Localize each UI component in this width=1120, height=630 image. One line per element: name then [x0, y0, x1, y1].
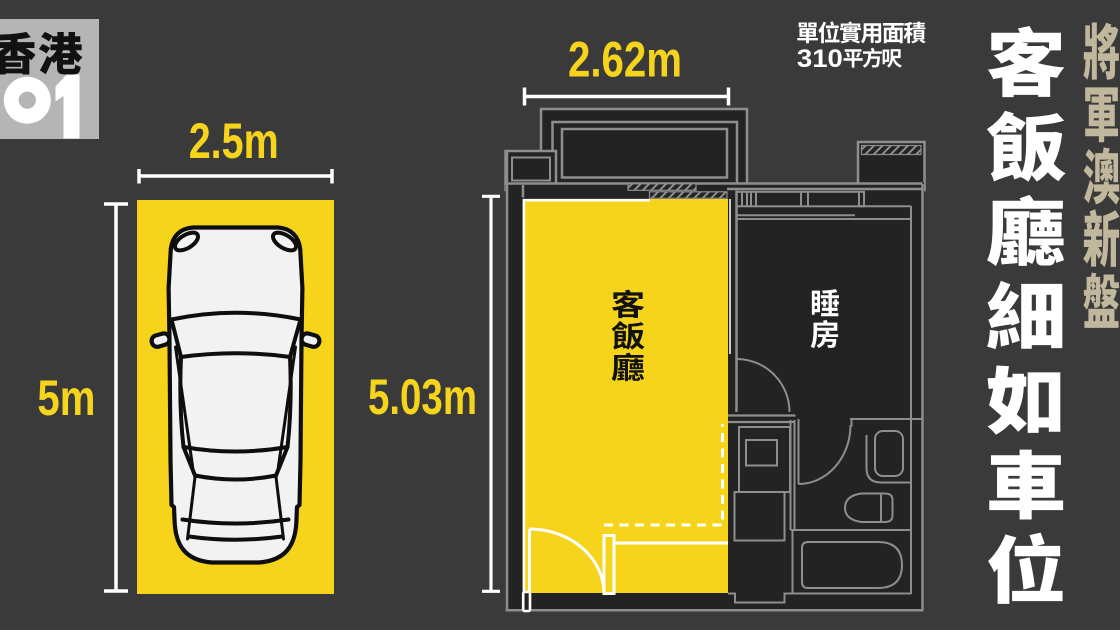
svg-text:310: 310: [797, 45, 843, 73]
svg-text:5.03m: 5.03m: [368, 369, 477, 425]
svg-text:2.62m: 2.62m: [568, 32, 682, 88]
svg-text:5m: 5m: [37, 370, 95, 426]
svg-text:2.5m: 2.5m: [189, 113, 279, 169]
